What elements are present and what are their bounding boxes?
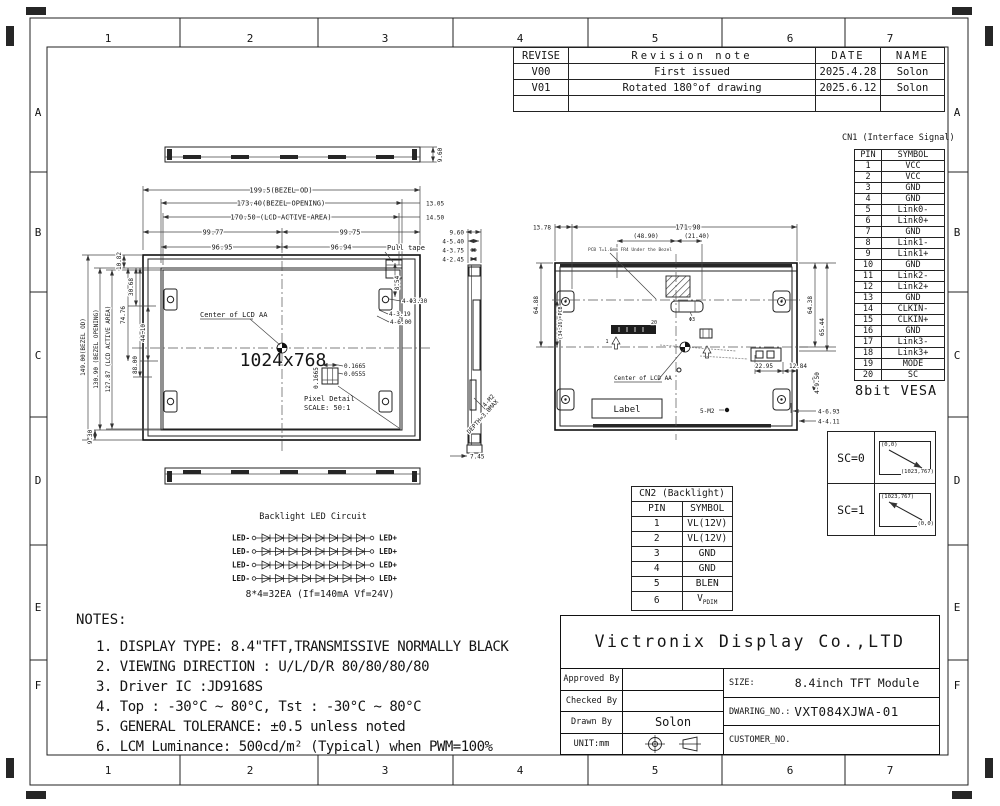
module-front-view: 1024x768 Center of LCD AA 199.5(BEZEL OD… xyxy=(80,186,444,452)
dim-half-opening-right: 96.94 xyxy=(330,244,351,252)
cn1-title: CN1 (Interface Signal) xyxy=(842,133,955,143)
cn1-row: 3GND xyxy=(855,183,945,194)
cn1-row: 8Link1- xyxy=(855,238,945,249)
approved-by-value xyxy=(623,669,723,690)
cn1-row: 20SC xyxy=(855,370,945,381)
sc-mode-label: SC=0 xyxy=(828,432,875,484)
drawing-no-value: VXT084XJWA-01 xyxy=(790,704,898,719)
revision-row: V00 First issued 2025.4.28 Solon xyxy=(514,64,945,80)
note-item: 6. LCM Luminance: 500cd/m² (Typical) whe… xyxy=(96,737,556,757)
cn1-footer-8bit-vesa: 8bit VESA xyxy=(855,383,937,399)
dim-64-88: 64.88 xyxy=(533,296,540,314)
cn2-title: CN2 (Backlight) xyxy=(632,487,733,502)
module-top-view: 9.60 xyxy=(165,147,444,162)
dim-active-area-height: 127.87 (LCD ACTIVE AREA) xyxy=(105,306,112,393)
cn2-row: 2VL(12V) xyxy=(632,532,733,547)
led-plus-label: LED+ xyxy=(379,534,398,543)
notes: NOTES: 1. DISPLAY TYPE: 8.4"TFT,TRANSMIS… xyxy=(76,612,556,757)
module-rear-view: Φ3 1 20 Center of LCD AA Label 5-M2 13.7… xyxy=(533,224,840,441)
revision-name: Solon xyxy=(881,64,945,80)
unit-label: UNIT:mm xyxy=(561,734,623,755)
dim-4-9-50: 4-9.50 xyxy=(814,372,821,394)
revision-note: First issued xyxy=(569,64,816,80)
size-row: SIZE: 8.4inch TFT Module xyxy=(724,669,939,698)
dim-4-3-19: 4-3.19 xyxy=(389,311,411,318)
zone-label: 3 xyxy=(382,764,389,777)
sc-mode-label: SC=1 xyxy=(828,484,875,536)
zone-label: 5 xyxy=(652,764,659,777)
zone-label: A xyxy=(954,106,961,119)
cn1-row: 9Link1+ xyxy=(855,249,945,260)
cn2-vpdim-sub: PDIM xyxy=(703,599,717,606)
revision-table: REVISE Revision note DATE NAME V00 First… xyxy=(513,47,945,112)
approved-by-label: Approved By xyxy=(561,669,623,690)
led-circuit-title: Backlight LED Circuit xyxy=(259,512,366,522)
rear-center-of-lcd-label: Center of LCD AA xyxy=(614,375,672,382)
drawn-by-label: Drawn By xyxy=(561,712,623,733)
dim-side-5-40: 4-5.40 xyxy=(442,239,464,246)
dim-7-45: 7.45 xyxy=(470,454,485,461)
zone-label: A xyxy=(35,106,42,119)
cn1-row: 14CLKIN- xyxy=(855,304,945,315)
zone-label: 7 xyxy=(887,32,894,45)
dim-4-6-00: 4-6.00 xyxy=(390,319,412,326)
revision-header-date: DATE xyxy=(816,48,881,64)
cn1-row: 6Link0+ xyxy=(855,216,945,227)
unit-row: UNIT:mm xyxy=(561,734,723,755)
dim-side-3-75: 4-3.75 xyxy=(442,248,464,255)
cn1-row: 10GND xyxy=(855,260,945,271)
cn2-row: 1VL(12V) xyxy=(632,517,733,532)
customer-no-label: CUSTOMER_NO. xyxy=(724,735,790,745)
note-item: 3. Driver IC :JD9168S xyxy=(96,677,556,697)
dim-8-54: 8.54 xyxy=(394,275,401,290)
dim-13-78: 13.78 xyxy=(533,225,551,232)
dim-half-width-left: 99.77 xyxy=(202,229,223,237)
led-plus-label: LED+ xyxy=(379,574,398,583)
dim-88-00: 88.00 xyxy=(132,356,139,374)
pixel-detail-label: Pixel Detail xyxy=(304,395,355,403)
cn1-row: 19MODE xyxy=(855,359,945,370)
cn1-row: 17Link3- xyxy=(855,337,945,348)
dim-half-opening-left: 96.95 xyxy=(211,244,232,252)
cn1-symbol-header: SYMBOL xyxy=(882,150,945,161)
zone-label: F xyxy=(35,679,42,692)
dim-22-95: 22.95 xyxy=(755,363,773,370)
zone-label: 5 xyxy=(652,32,659,45)
zone-label: E xyxy=(954,601,961,614)
zone-label: 6 xyxy=(787,32,794,45)
dim-right-offset-2: 14.50 xyxy=(426,215,444,222)
cn1-pin-header: PIN xyxy=(855,150,882,161)
led-plus-label: LED+ xyxy=(379,547,398,556)
sc1-end: (0,0) xyxy=(917,521,934,527)
dim-bezel-od-width: 199.5(BEZEL OD) xyxy=(249,187,312,195)
notes-title: NOTES: xyxy=(76,612,556,628)
approval-table: Approved By Checked By Drawn By Solon UN… xyxy=(561,669,723,754)
cn1-row: 2VCC xyxy=(855,172,945,183)
drawing-no-row: DWARING_NO.: VXT084XJWA-01 xyxy=(724,698,939,727)
cn2-row: 5BLEN xyxy=(632,577,733,592)
cn1-row: 13GND xyxy=(855,293,945,304)
led-plus-label: LED+ xyxy=(379,561,398,570)
revision-name: Solon xyxy=(881,80,945,96)
pixel-detail-scale: SCALE: 50:1 xyxy=(304,404,350,412)
sc-row: SC=0 (0,0) (1023,767) xyxy=(828,432,936,484)
customer-no-row: CUSTOMER_NO. xyxy=(724,726,939,754)
pull-tape-label: Pull tape xyxy=(387,244,425,252)
size-label: SIZE: xyxy=(724,678,775,688)
dim-mount-hole: 4-Φ3.30 xyxy=(402,298,428,305)
zone-label: 3 xyxy=(382,32,389,45)
sc1-origin: (1023,767) xyxy=(881,494,914,500)
label-box-text: Label xyxy=(613,405,640,415)
revision-date: 2025.6.12 xyxy=(816,80,881,96)
checked-by-row: Checked By xyxy=(561,691,723,713)
dim-right-offset-1: 13.05 xyxy=(426,201,444,208)
zone-label: B xyxy=(954,226,961,239)
dim-side-thickness: 9.60 xyxy=(450,230,465,237)
cn1-row: 11Link2- xyxy=(855,271,945,282)
pixel-pitch-width: 0.1665 xyxy=(344,363,366,370)
dim-65-44: 65.44 xyxy=(819,318,826,336)
drawn-by-value: Solon xyxy=(623,712,723,733)
cn1-row: 7GND xyxy=(855,227,945,238)
dim-30-68: 30.68 xyxy=(128,278,135,296)
note-item: 5. GENERAL TOLERANCE: ±0.5 unless noted xyxy=(96,717,556,737)
zone-label: 4 xyxy=(517,32,524,45)
sc-row: SC=1 (1023,767) (0,0) xyxy=(828,484,936,536)
revision-header-note: Revision note xyxy=(569,48,816,64)
zone-label: D xyxy=(35,474,42,487)
revision-rev: V00 xyxy=(514,64,569,80)
checked-by-label: Checked By xyxy=(561,691,623,712)
led-minus-label: LED- xyxy=(232,534,250,543)
led-formula: 8*4=32EA (If=140mA Vf=24V) xyxy=(246,589,395,600)
cn1-table: PINSYMBOL 1VCC 2VCC 3GND 4GND 5Link0- 6L… xyxy=(854,149,945,381)
dim-half-width-right: 99.75 xyxy=(339,229,360,237)
revision-rev: V01 xyxy=(514,80,569,96)
pixel-pitch-height: 0.1665 xyxy=(313,367,320,389)
connector-pin1-label: 1 xyxy=(605,339,608,345)
cn1-row: 16GND xyxy=(855,326,945,337)
third-angle-projection-icon xyxy=(623,734,723,754)
dim-48-90: (48.90) xyxy=(633,233,658,240)
zone-label: 2 xyxy=(247,32,254,45)
drawing-no-label: DWARING_NO.: xyxy=(724,707,790,717)
zone-label: F xyxy=(954,679,961,692)
sc-mode-table: SC=0 (0,0) (1023,767) SC=1 (1023,767) (0… xyxy=(827,431,936,536)
dim-12-84: 12.84 xyxy=(789,363,807,370)
title-block: Victronix Display Co.,LTD Approved By Ch… xyxy=(560,615,940,755)
led-minus-label: LED- xyxy=(232,561,250,570)
cn2-pin-header: PIN xyxy=(632,502,683,517)
size-value: 8.4inch TFT Module xyxy=(775,676,939,690)
dim-74-76: 74.76 xyxy=(120,306,127,324)
dim-171-90: 171.90 xyxy=(675,224,700,232)
zone-label: 7 xyxy=(887,764,894,777)
zone-label: C xyxy=(954,349,961,362)
dim-top-view-height: 9.60 xyxy=(437,147,444,162)
dim-21-40: (21.40) xyxy=(684,233,709,240)
cn2-row: 3GND xyxy=(632,547,733,562)
drawing-info-table: SIZE: 8.4inch TFT Module DWARING_NO.: VX… xyxy=(723,669,939,754)
projection-symbols xyxy=(623,734,723,755)
center-of-lcd-label: Center of LCD AA xyxy=(200,311,268,319)
dim-bezel-opening-width: 173.40(BEZEL OPENING) xyxy=(237,200,326,208)
note-item: 2. VIEWING DIRECTION : U/L/D/R 80/80/80/… xyxy=(96,657,556,677)
revision-header-name: NAME xyxy=(881,48,945,64)
revision-date: 2025.4.28 xyxy=(816,64,881,80)
cn1-row: 5Link0- xyxy=(855,205,945,216)
dim-bezel-od-height: 149.00(BEZEL OD) xyxy=(80,318,87,376)
dim-bezel-opening-height: 130.90 (BEZEL OPENING) xyxy=(93,309,100,388)
revision-row-empty xyxy=(514,96,945,112)
dim-34-26-pcb: (34.26) PCB xyxy=(558,306,564,339)
sc0-origin: (0,0) xyxy=(881,442,898,448)
dim-hole-phi3: Φ3 xyxy=(689,317,695,323)
backlight-led-circuit: Backlight LED Circuit LED- LED- LED- LED… xyxy=(232,512,398,600)
revision-note: Rotated 180°of drawing xyxy=(569,80,816,96)
cn1-row: 12Link2+ xyxy=(855,282,945,293)
pixel-subpixel-width: 0.0555 xyxy=(344,371,366,378)
approved-by-row: Approved By xyxy=(561,669,723,691)
zone-label: D xyxy=(954,474,961,487)
revision-row: V01 Rotated 180°of drawing 2025.6.12 Sol… xyxy=(514,80,945,96)
cn2-row: 4GND xyxy=(632,562,733,577)
cn2-table: CN2 (Backlight) PINSYMBOL 1VL(12V) 2VL(1… xyxy=(631,486,733,611)
zone-label: 6 xyxy=(787,764,794,777)
note-item: 1. DISPLAY TYPE: 8.4"TFT,TRANSMISSIVE NO… xyxy=(96,637,556,657)
module-bottom-view xyxy=(165,468,420,484)
cn1-row: 4GND xyxy=(855,194,945,205)
dim-44-10: 44.10 xyxy=(140,324,147,342)
dim-64-38: 64.38 xyxy=(807,296,814,314)
led-minus-label: LED- xyxy=(232,574,250,583)
connector-pin20-label: 20 xyxy=(651,320,657,326)
cn1-row: 15CLKIN+ xyxy=(855,315,945,326)
sc0-end: (1023,767) xyxy=(901,469,934,475)
zone-label: 1 xyxy=(105,32,112,45)
dim-top-offset: 10.82 xyxy=(116,252,123,270)
cn2-row: 6VPDIM xyxy=(632,592,733,611)
checked-by-value xyxy=(623,691,723,712)
zone-label: E xyxy=(35,601,42,614)
module-side-view: 9.60 4-5.40 4-3.75 4-2.45 4-M2 DEPTH=3.0… xyxy=(442,229,500,461)
cn2-symbol-header: SYMBOL xyxy=(682,502,733,517)
zone-label: 4 xyxy=(517,764,524,777)
revision-header-row: REVISE Revision note DATE NAME xyxy=(514,48,945,64)
dim-4-4-11: 4-4.11 xyxy=(818,419,840,426)
sc1-screen: (1023,767) (0,0) xyxy=(879,493,931,527)
revision-header-revise: REVISE xyxy=(514,48,569,64)
dim-bottom-offset: 9.30 xyxy=(87,429,94,444)
dim-5-m2: 5-M2 xyxy=(700,408,715,415)
zone-label: C xyxy=(35,349,42,362)
pcb-note: PCB T=1.6mm FR4 Under the Bezel xyxy=(588,247,672,253)
cn1-row: 1VCC xyxy=(855,161,945,172)
dim-side-2-45: 4-2.45 xyxy=(442,257,464,264)
cn1-row: 18Link3+ xyxy=(855,348,945,359)
sc0-screen: (0,0) (1023,767) xyxy=(879,441,931,475)
dim-4-6-93: 4-6.93 xyxy=(818,409,840,416)
engineering-drawing-sheet: { "frame": { "cols": ["1","2","3","4","5… xyxy=(0,0,1000,806)
note-item: 4. Top : -30°C ~ 80°C, Tst : -30°C ~ 80°… xyxy=(96,697,556,717)
zone-label: 2 xyxy=(247,764,254,777)
dim-active-area-width: 170.50 (LCD ACTIVE AREA) xyxy=(230,214,331,222)
zone-label: 1 xyxy=(105,764,112,777)
drawn-by-row: Drawn By Solon xyxy=(561,712,723,734)
zone-label: B xyxy=(35,226,42,239)
led-minus-label: LED- xyxy=(232,547,250,556)
company-name: Victronix Display Co.,LTD xyxy=(561,616,939,669)
